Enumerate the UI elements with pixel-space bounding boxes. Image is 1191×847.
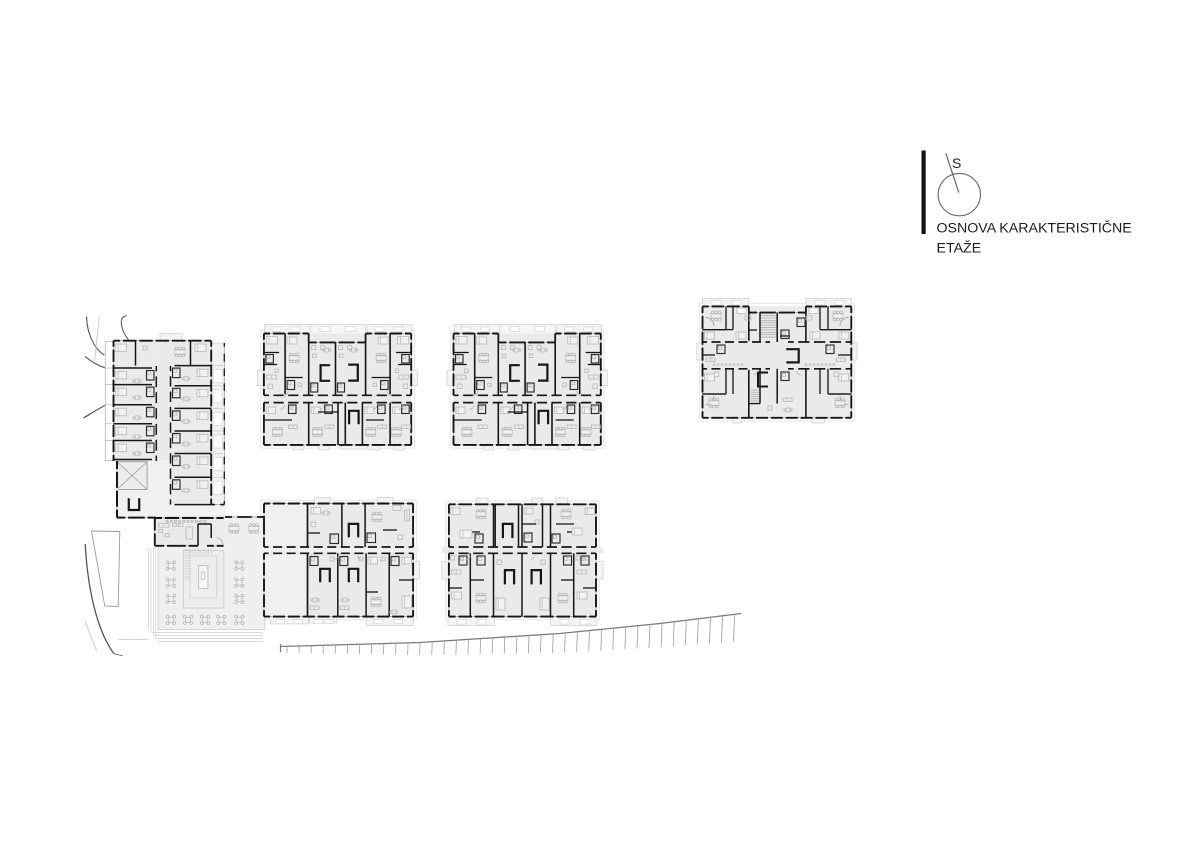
svg-text:S: S xyxy=(952,155,961,171)
svg-text:ETAŽE: ETAŽE xyxy=(937,240,982,257)
svg-text:OSNOVA KARAKTERISTIČNE: OSNOVA KARAKTERISTIČNE xyxy=(937,220,1132,237)
